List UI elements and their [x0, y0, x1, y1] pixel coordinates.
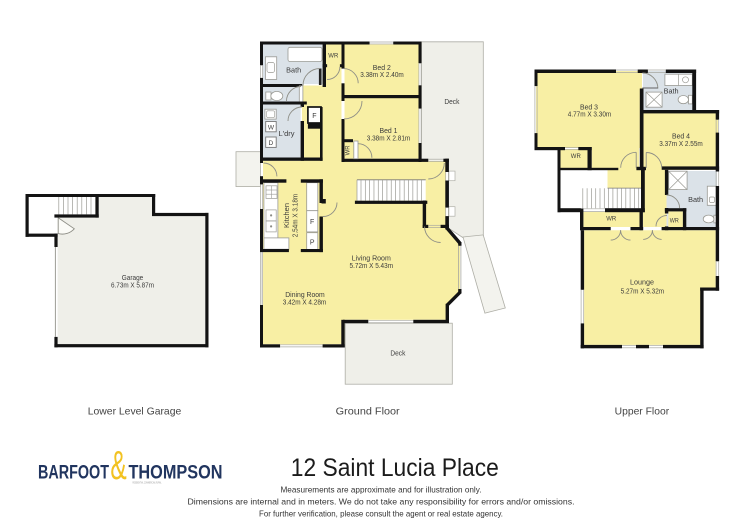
svg-text:RESIDENTIAL COMMERCIAL RURAL: RESIDENTIAL COMMERCIAL RURAL [133, 480, 162, 484]
svg-text:Lounge: Lounge [630, 278, 654, 287]
svg-text:&: & [110, 444, 126, 489]
svg-text:3.42m X 4.28m: 3.42m X 4.28m [283, 298, 327, 307]
svg-text:5.27m X 5.32m: 5.27m X 5.32m [621, 286, 665, 295]
svg-text:3.38m X 2.81m: 3.38m X 2.81m [367, 133, 411, 142]
svg-text:WR: WR [571, 153, 581, 160]
svg-text:For further verification, plea: For further verification, please consult… [259, 510, 503, 519]
svg-text:WR: WR [344, 145, 351, 155]
svg-text:F: F [312, 113, 316, 120]
svg-text:WR: WR [328, 52, 338, 59]
svg-text:Upper Floor: Upper Floor [615, 406, 670, 418]
svg-text:12 Saint Lucia Place: 12 Saint Lucia Place [291, 454, 499, 482]
svg-text:Ground Floor: Ground Floor [336, 406, 401, 418]
svg-text:5.72m X 5.43m: 5.72m X 5.43m [350, 261, 394, 270]
svg-text:3.38m X 2.40m: 3.38m X 2.40m [360, 70, 404, 79]
svg-text:Deck: Deck [444, 97, 459, 106]
svg-text:Bath: Bath [664, 86, 679, 95]
svg-text:Lower Level Garage: Lower Level Garage [88, 406, 182, 418]
svg-text:D: D [269, 140, 274, 147]
svg-text:W: W [268, 124, 275, 131]
svg-text:Bath: Bath [286, 66, 301, 75]
svg-text:P: P [310, 239, 315, 246]
svg-text:WR: WR [606, 216, 616, 223]
svg-text:L'dry: L'dry [279, 129, 295, 138]
svg-text:Deck: Deck [390, 349, 405, 358]
svg-text:6.73m X 5.87m: 6.73m X 5.87m [111, 281, 154, 290]
svg-text:BARFOOT: BARFOOT [38, 462, 109, 484]
svg-text:Dimensions are internal and in: Dimensions are internal and in meters. W… [188, 498, 575, 507]
svg-text:F: F [310, 219, 314, 226]
svg-text:Bath: Bath [688, 195, 703, 204]
svg-text:4.77m X 3.30m: 4.77m X 3.30m [568, 109, 612, 118]
svg-text:Measurements are approximate a: Measurements are approximate and for ill… [281, 486, 482, 495]
svg-text:2.54m X 3.18m: 2.54m X 3.18m [290, 194, 299, 238]
svg-text:WR: WR [670, 217, 679, 224]
svg-text:3.37m X 2.55m: 3.37m X 2.55m [659, 139, 703, 148]
